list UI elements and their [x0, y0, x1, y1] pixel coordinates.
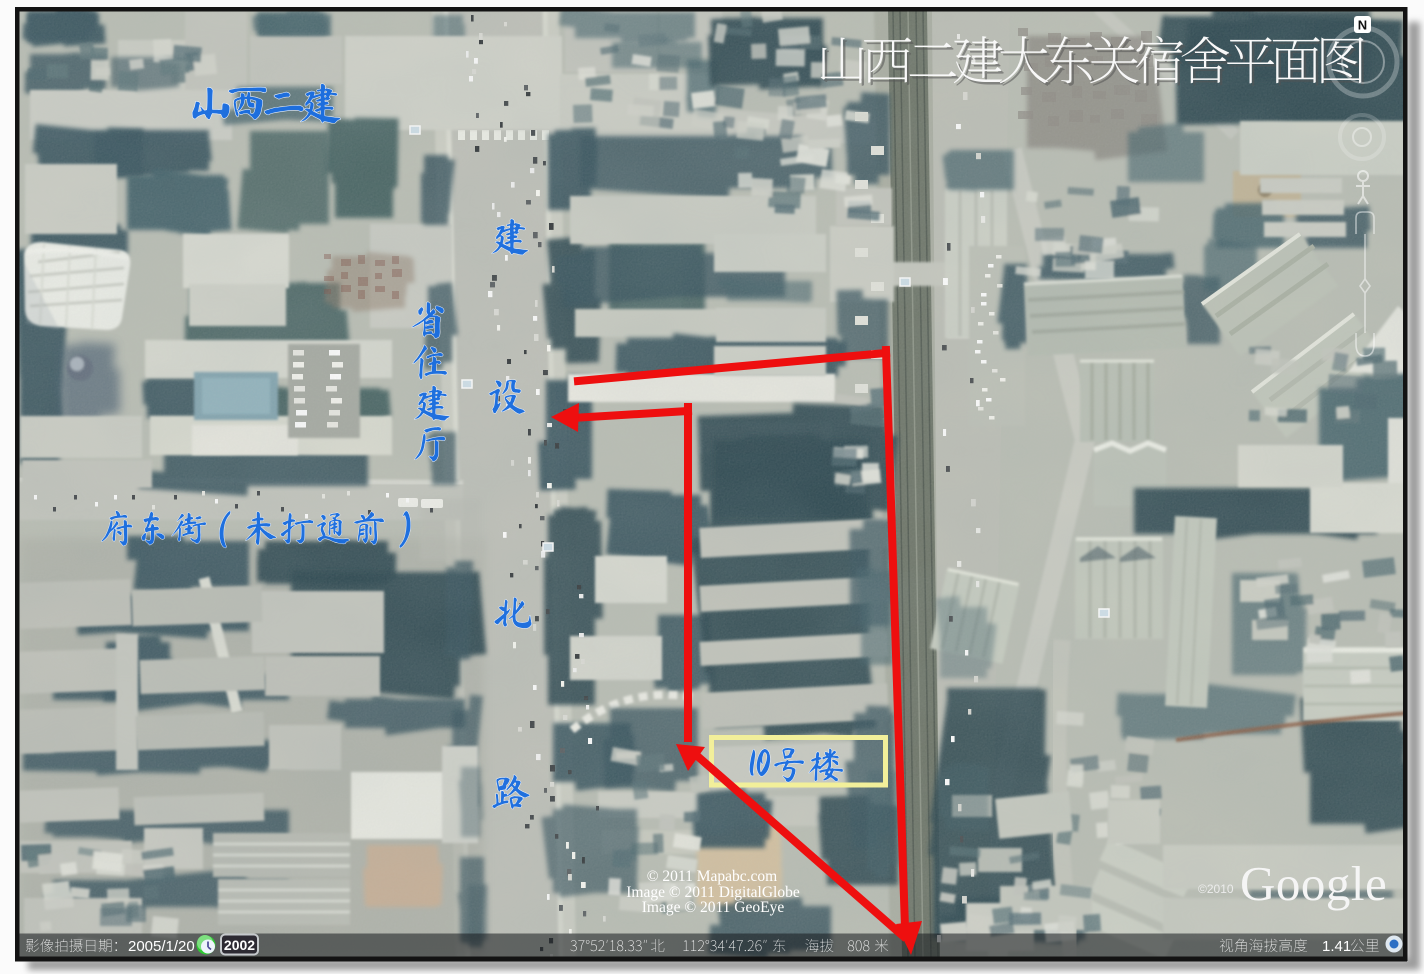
svg-text:© 2011 Mapabc.com: © 2011 Mapabc.com: [647, 868, 777, 885]
svg-text:2002: 2002: [224, 937, 255, 953]
svg-text:2005/1/20: 2005/1/20: [128, 938, 195, 955]
svg-text:Google: Google: [1240, 856, 1387, 911]
svg-text:1.41: 1.41: [1322, 938, 1351, 955]
svg-text:N: N: [1358, 18, 1367, 33]
svg-text:©2010: ©2010: [1198, 882, 1234, 896]
svg-text:Image © 2011 GeoEye: Image © 2011 GeoEye: [642, 899, 785, 916]
